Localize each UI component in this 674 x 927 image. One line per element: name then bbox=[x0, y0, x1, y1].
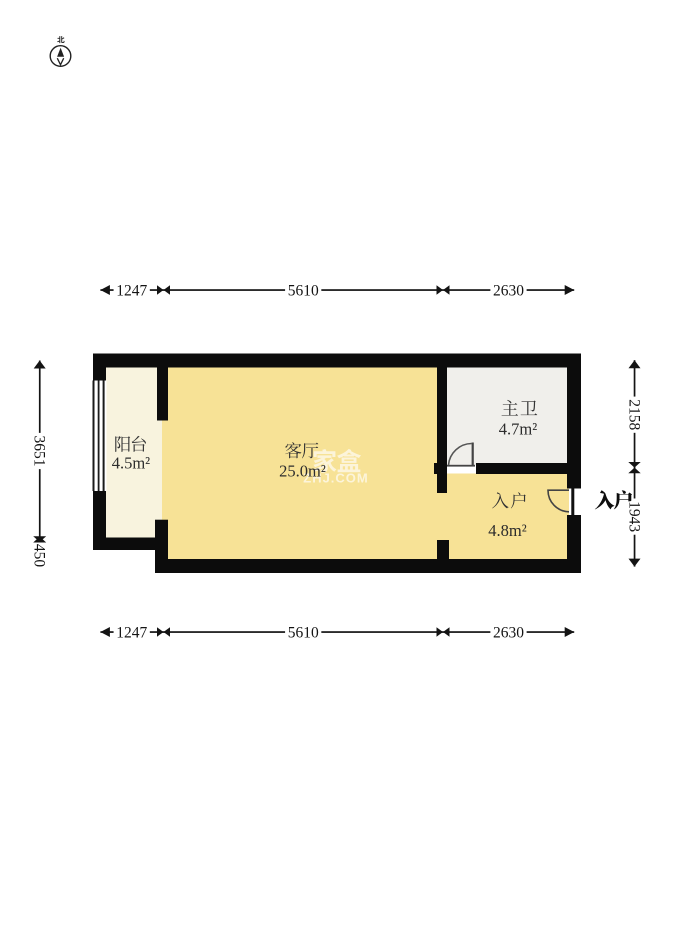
svg-text:2630: 2630 bbox=[493, 624, 524, 641]
svg-text:1247: 1247 bbox=[116, 624, 147, 641]
svg-text:2630: 2630 bbox=[493, 282, 524, 299]
svg-text:1943: 1943 bbox=[625, 501, 642, 532]
svg-text:450: 450 bbox=[31, 544, 48, 568]
svg-text:5610: 5610 bbox=[288, 282, 319, 299]
svg-text:1247: 1247 bbox=[116, 282, 147, 299]
svg-text:25.0m²: 25.0m² bbox=[279, 462, 326, 481]
svg-text:4.8m²: 4.8m² bbox=[488, 521, 526, 540]
svg-text:5610: 5610 bbox=[288, 624, 319, 641]
svg-text:2158: 2158 bbox=[625, 399, 642, 430]
svg-text:3651: 3651 bbox=[31, 436, 48, 467]
svg-text:4.5m²: 4.5m² bbox=[112, 453, 150, 472]
svg-text:4.7m²: 4.7m² bbox=[499, 420, 537, 439]
